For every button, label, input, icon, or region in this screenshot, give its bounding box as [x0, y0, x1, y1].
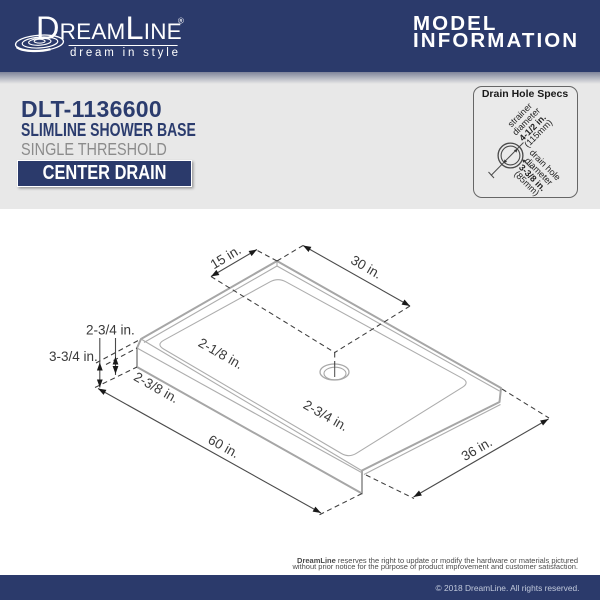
- svg-text:3-3/4 in.: 3-3/4 in.: [49, 349, 98, 364]
- svg-text:DREAMLINE: DREAMLINE: [36, 10, 182, 46]
- svg-text:2-1/8 in.: 2-1/8 in.: [196, 335, 246, 372]
- svg-text:36 in.: 36 in.: [459, 434, 495, 464]
- svg-text:dream in style: dream in style: [70, 47, 181, 59]
- svg-text:2-3/4 in.: 2-3/4 in.: [86, 323, 135, 338]
- svg-text:60 in.: 60 in.: [206, 432, 242, 461]
- svg-text:2-3/4 in.: 2-3/4 in.: [301, 397, 351, 434]
- svg-text:®: ®: [178, 17, 184, 26]
- svg-text:30 in.: 30 in.: [348, 252, 384, 282]
